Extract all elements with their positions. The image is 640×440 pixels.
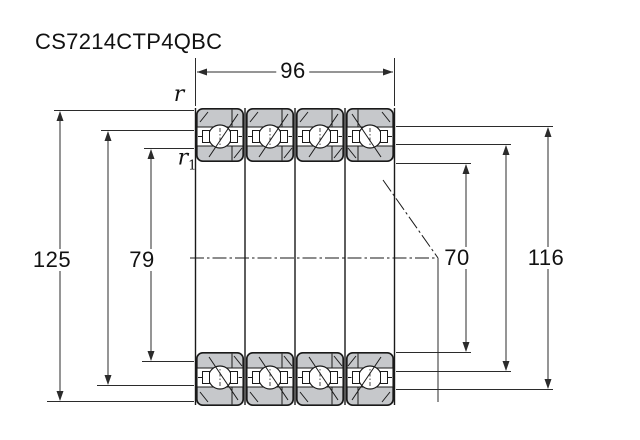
bearing-unit-mirrored	[347, 109, 393, 161]
dim-label-width: 96	[276, 60, 309, 82]
bearing-technical-drawing: CS7214CTP4QBC 96 125 79 70 116 r r1	[0, 0, 640, 440]
dim-label-outer-shoulder: 116	[524, 247, 569, 269]
inner-chamfer-radius-label: r1	[178, 147, 197, 172]
inner-chamfer-radius-subscript: 1	[188, 159, 196, 174]
inner-chamfer-radius-base: r	[178, 145, 189, 170]
bearing-unit	[197, 109, 243, 161]
bearing-unit	[297, 353, 343, 405]
bearing-unit	[247, 353, 293, 405]
drawing-canvas	[0, 0, 640, 440]
dim-label-outer-diameter: 125	[29, 249, 75, 271]
jogged-centerline	[383, 180, 438, 258]
bearing-unit	[297, 109, 343, 161]
bearing-unit	[197, 353, 243, 405]
dim-label-bore: 70	[440, 247, 473, 269]
part-number-title: CS7214CTP4QBC	[35, 31, 222, 53]
bearing-unit	[247, 109, 293, 161]
outer-chamfer-radius-label: r	[174, 84, 185, 106]
bearing-unit-mirrored	[347, 353, 393, 405]
dim-label-inner-shoulder: 79	[125, 249, 158, 271]
